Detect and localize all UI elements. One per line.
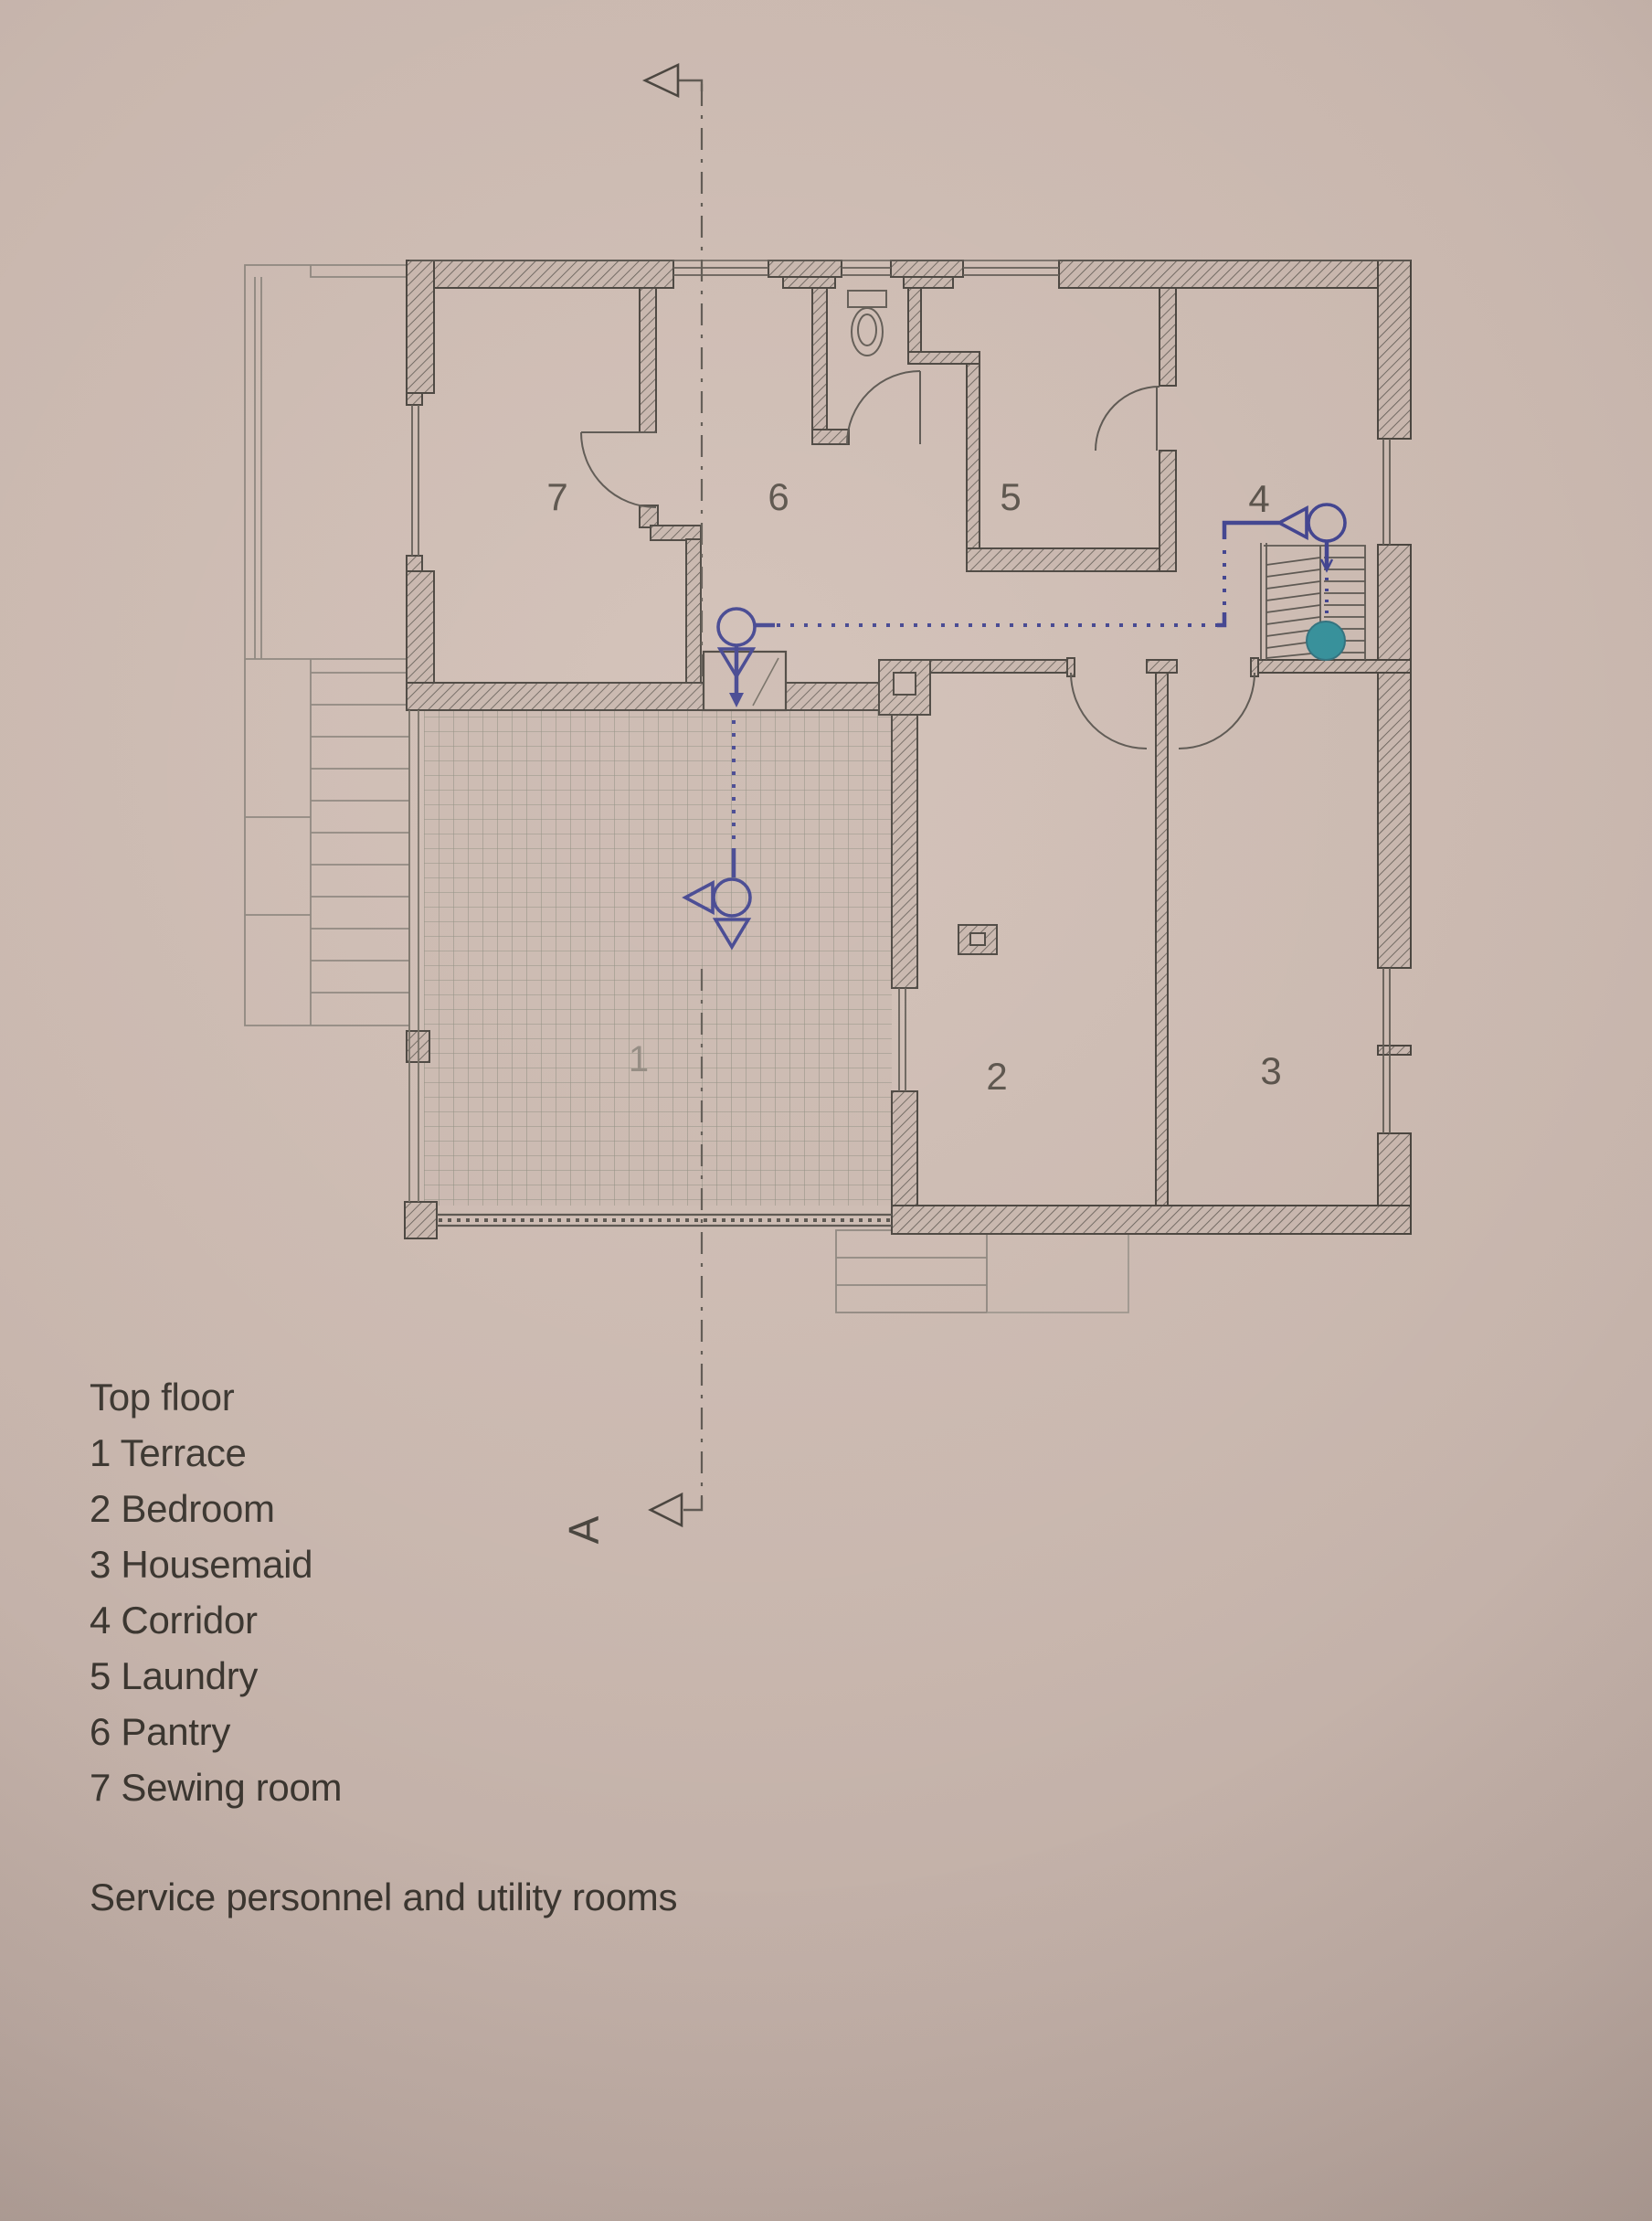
book-page: A 1 2 3 4 5 6 7 [0, 0, 1652, 2221]
room-label-bedroom: 2 [986, 1055, 1007, 1098]
room-label-sewing: 7 [546, 475, 567, 518]
exterior-steps-bottom [836, 1230, 1128, 1312]
teal-stair-dot-icon [1307, 622, 1345, 660]
room-label-laundry: 5 [1000, 475, 1021, 518]
legend-caption: Service personnel and utility rooms [90, 1869, 677, 1925]
legend-item-terrace: 1 Terrace [90, 1425, 677, 1481]
legend-item-pantry: 6 Pantry [90, 1704, 677, 1759]
legend-item-bedroom: 2 Bedroom [90, 1481, 677, 1536]
exterior-stair-left [245, 265, 409, 1025]
legend-item-corridor: 4 Corridor [90, 1592, 677, 1648]
legend-item-housemaid: 3 Housemaid [90, 1536, 677, 1592]
terrace-tile-grid [424, 710, 892, 1206]
room-label-terrace: 1 [629, 1039, 649, 1079]
legend: Top floor 1 Terrace 2 Bedroom 3 Housemai… [90, 1369, 677, 1925]
legend-title: Top floor [90, 1369, 677, 1425]
room-label-pantry: 6 [768, 475, 789, 518]
legend-item-sewing: 7 Sewing room [90, 1759, 677, 1815]
room-label-corridor: 4 [1248, 477, 1269, 520]
toilet-icon [848, 291, 886, 356]
room-label-housemaid: 3 [1260, 1049, 1281, 1092]
section-arrow-top [645, 65, 678, 96]
legend-item-laundry: 5 Laundry [90, 1648, 677, 1704]
camera-marker-corridor [1279, 505, 1345, 541]
